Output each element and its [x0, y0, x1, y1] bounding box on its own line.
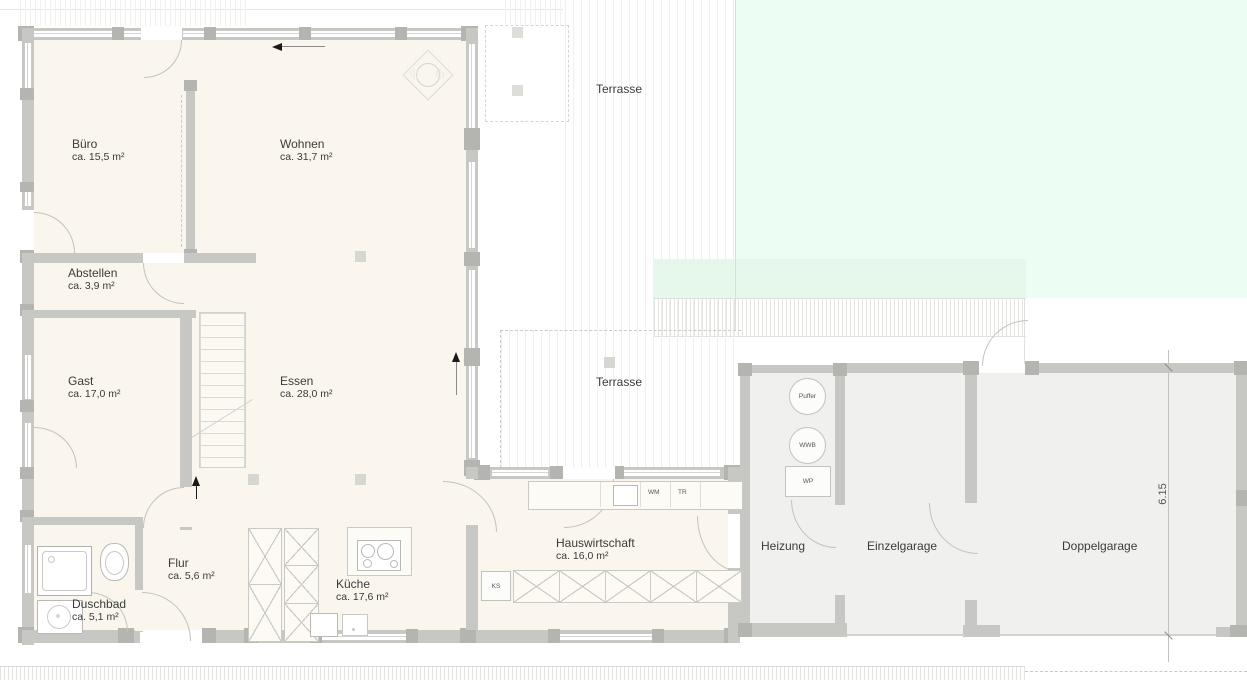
- sink-drain-dot: [352, 628, 355, 631]
- closet-cell: [249, 529, 281, 585]
- closet-cell: [559, 571, 604, 602]
- entry-arrow-line: [282, 46, 325, 47]
- terrace-mid-label: Terrasse: [596, 375, 642, 389]
- heat-pump-label: WP: [803, 478, 813, 485]
- room-name: Gast: [68, 374, 121, 388]
- top-hatch-right: [505, 0, 565, 26]
- terrace-name: Terrasse: [596, 82, 642, 96]
- shower-drain: [48, 556, 55, 563]
- room-name: Wohnen: [280, 137, 333, 151]
- wall-doppelgarage-top: [1027, 363, 1236, 373]
- closet-cell: [650, 571, 695, 602]
- window-left-1: [24, 43, 32, 91]
- pillar: [460, 628, 476, 643]
- room-label-heizung: Heizung: [761, 539, 805, 553]
- wall-bad-top: [22, 517, 143, 525]
- room-label-buero: Büro ca. 15,5 m²: [72, 137, 125, 164]
- room-area: ca. 16,0 m²: [556, 550, 635, 562]
- fridge-label: KS: [492, 583, 501, 590]
- staircase: [199, 312, 246, 468]
- wall-abstellen-gast: [22, 310, 196, 318]
- pillar: [1236, 490, 1247, 506]
- window-top-3: [183, 30, 204, 38]
- window-top-6: [407, 30, 461, 38]
- pillar: [548, 629, 560, 643]
- cooktop-burner: [361, 544, 375, 558]
- pillar: [406, 629, 418, 643]
- room-name: Doppelgarage: [1062, 539, 1137, 553]
- kitchen-sink-basin: [310, 613, 338, 637]
- wall-buero-wohnen: [186, 85, 195, 255]
- closet-cell: [285, 566, 318, 603]
- pillar: [395, 27, 407, 40]
- room-name: Flur: [168, 556, 215, 570]
- pillar: [299, 27, 311, 40]
- column: [355, 251, 366, 262]
- washbasin-drain: [56, 614, 60, 618]
- wall-heizung-right-upper: [835, 365, 845, 505]
- window-top-2: [124, 30, 141, 38]
- room-label-wohnen: Wohnen ca. 31,7 m²: [280, 137, 333, 164]
- pillar: [833, 363, 847, 376]
- essen-direction-arrow: [452, 352, 460, 362]
- pillar: [738, 623, 752, 637]
- window-right-2: [468, 162, 476, 248]
- top-hatch-left: [20, 0, 250, 26]
- room-area: ca. 5,6 m²: [168, 570, 215, 582]
- room-name: Duschbad: [72, 597, 126, 611]
- window-right-4: [468, 366, 476, 458]
- room-label-flur: Flur ca. 5,6 m²: [168, 556, 215, 583]
- pillar: [20, 88, 34, 100]
- window-hww-2: [622, 469, 720, 477]
- closet-cell: [285, 529, 318, 566]
- pillar: [184, 80, 197, 91]
- column: [248, 474, 259, 485]
- hww-sink: [613, 485, 638, 506]
- property-dashed-line: [1025, 671, 1247, 672]
- bottom-gravel-strip: [0, 666, 1025, 680]
- room-area: ca. 3,9 m²: [68, 280, 117, 292]
- terrace-top: [565, 0, 736, 330]
- water-heater: WWB: [789, 427, 826, 464]
- window-bottom-2: [558, 633, 654, 641]
- pillar: [20, 467, 34, 479]
- wall-kueche-hww-stub: [466, 467, 478, 479]
- pillar: [1230, 625, 1247, 637]
- wall-kueche-hww: [466, 525, 478, 630]
- window-top-1: [32, 30, 112, 38]
- window-left-4: [24, 423, 32, 467]
- closet-cell: [249, 585, 281, 641]
- wall-einzelgarage-top: [845, 363, 977, 373]
- room-label-doppelgarage: Doppelgarage: [1062, 539, 1137, 553]
- kitchen-sink-drainer: [342, 614, 368, 636]
- counter-divider: [670, 482, 671, 507]
- window-left-3: [24, 355, 32, 399]
- wall-garage-divider-upper: [965, 373, 977, 503]
- terrace-top-label: Terrasse: [596, 82, 642, 96]
- closet-cell: [514, 571, 559, 602]
- room-label-kueche: Küche ca. 17,6 m²: [336, 577, 389, 604]
- heat-pump: WP: [785, 466, 831, 497]
- stairs-arrow-stem: [196, 486, 197, 499]
- wall-garage-divider-stub: [965, 600, 977, 625]
- pillar: [652, 629, 664, 643]
- water-heater-label: WWB: [799, 442, 816, 449]
- hww-closet-row: [513, 570, 742, 603]
- room-label-duschbad: Duschbad ca. 5,1 m²: [72, 597, 126, 624]
- dashed-opening-buero: [181, 95, 182, 247]
- dryer-label: TR: [678, 489, 687, 496]
- pillar: [112, 27, 124, 40]
- room-area: ca. 15,5 m²: [72, 151, 125, 163]
- room-name: Einzelgarage: [867, 539, 937, 553]
- pillar: [20, 182, 34, 192]
- washing-machine-label: WM: [648, 489, 660, 496]
- cooktop-burner: [377, 543, 394, 560]
- pillar: [204, 27, 216, 40]
- room-area: ca. 17,0 m²: [68, 388, 121, 400]
- room-label-hauswirtschaft: Hauswirtschaft ca. 16,0 m²: [556, 536, 635, 563]
- pillar: [615, 466, 624, 479]
- buffer-tank: Puffer: [789, 378, 826, 415]
- window-right-1: [468, 44, 476, 128]
- toilet-inner: [105, 551, 124, 575]
- fridge-box: KS: [481, 571, 511, 601]
- wall-heizung-bottom: [740, 623, 847, 637]
- garage-door-line-einzel: [847, 634, 965, 636]
- garage-door-line-doppel: [1000, 634, 1216, 636]
- cooktop-burner: [363, 559, 372, 568]
- flur-closet-1: [248, 528, 282, 642]
- entry-direction-arrow: [272, 43, 282, 51]
- room-area: ca. 28,0 m²: [280, 388, 333, 400]
- room-area: ca. 17,6 m²: [336, 591, 389, 603]
- closet-cell: [696, 571, 741, 602]
- room-label-essen: Essen ca. 28,0 m²: [280, 374, 333, 401]
- room-label-abstellen: Abstellen ca. 3,9 m²: [68, 266, 117, 293]
- closet-cell: [605, 571, 650, 602]
- room-name: Küche: [336, 577, 389, 591]
- room-name: Büro: [72, 137, 125, 151]
- lawn-area: [735, 0, 1247, 298]
- pillar: [464, 348, 480, 366]
- column: [355, 474, 366, 485]
- dimension-value: 6.15: [1157, 483, 1169, 504]
- pillar: [464, 128, 480, 150]
- roof-overhang-dashed: [485, 25, 569, 122]
- buffer-tank-label: Puffer: [799, 393, 816, 400]
- pillar: [963, 361, 979, 375]
- room-label-einzelgarage: Einzelgarage: [867, 539, 937, 553]
- column: [512, 27, 523, 38]
- window-top-4: [216, 30, 299, 38]
- stairs-direction-arrow: [192, 476, 200, 486]
- column: [604, 357, 615, 368]
- pillar: [202, 628, 216, 643]
- door-gap-hww-terrace: [563, 467, 615, 479]
- counter-divider: [640, 482, 641, 507]
- door-gap-abstellen: [143, 253, 184, 263]
- column: [512, 85, 523, 96]
- room-name: Heizung: [761, 539, 805, 553]
- pillar: [550, 466, 563, 479]
- window-left-5: [24, 545, 32, 593]
- terrace-mid: [500, 330, 741, 468]
- essen-arrow-stem: [456, 362, 457, 395]
- door-gap-buero: [22, 210, 34, 252]
- garage-door-stub-1: [963, 625, 1000, 637]
- room-label-gast: Gast ca. 17,0 m²: [68, 374, 121, 401]
- room-area: ca. 31,7 m²: [280, 151, 333, 163]
- pillar: [20, 400, 34, 412]
- cooktop-burner: [390, 560, 398, 568]
- room-area: ca. 5,1 m²: [72, 611, 126, 623]
- room-name: Abstellen: [68, 266, 117, 280]
- pillar: [464, 252, 480, 266]
- pillar: [738, 363, 752, 376]
- wall-heizung-top: [740, 365, 845, 373]
- window-left-2: [24, 190, 32, 206]
- room-name: Hauswirtschaft: [556, 536, 635, 550]
- window-top-5: [311, 30, 395, 38]
- fireplace: [403, 50, 451, 98]
- floor-plan: KS WM TR Puffer WWB WP: [0, 0, 1247, 680]
- pillar: [1234, 361, 1247, 375]
- counter-divider: [700, 482, 701, 507]
- door-gap-top: [141, 28, 182, 40]
- counter-divider: [600, 482, 601, 507]
- wall-mid-horizontal: [22, 253, 256, 263]
- terrace-name: Terrasse: [596, 375, 642, 389]
- window-right-3: [468, 270, 476, 348]
- window-hww-1: [492, 469, 548, 477]
- room-name: Essen: [280, 374, 333, 388]
- dimension-label: 6.15: [1157, 474, 1169, 514]
